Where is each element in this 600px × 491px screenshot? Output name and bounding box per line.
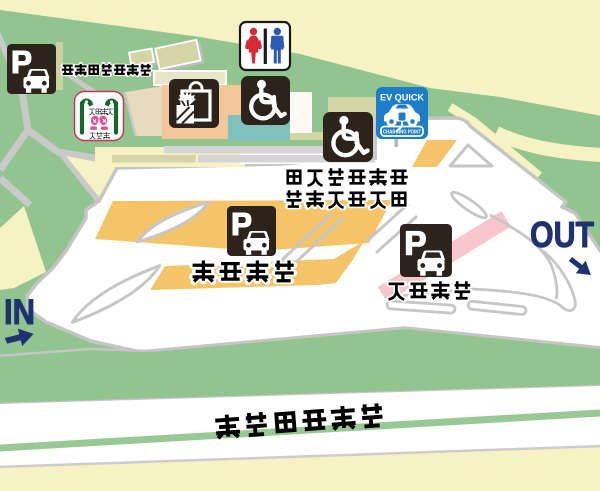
svg-text:EV QUICK: EV QUICK xyxy=(380,92,424,103)
svg-text:CHARGING POINT: CHARGING POINT xyxy=(383,130,422,136)
svg-text:IN: IN xyxy=(4,293,35,332)
svg-text:OUT: OUT xyxy=(530,214,594,255)
